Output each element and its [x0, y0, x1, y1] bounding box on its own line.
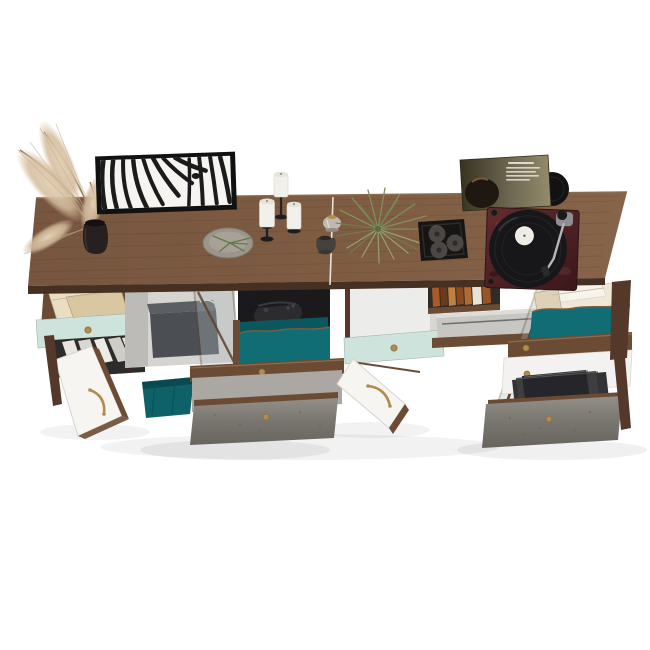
concrete-front	[482, 396, 622, 448]
brass-knob	[391, 345, 397, 351]
brass-knob	[263, 414, 269, 420]
candle-3	[287, 202, 301, 234]
concrete-drawer-right	[482, 392, 624, 448]
zebra-art-frame	[95, 152, 237, 215]
concrete-front	[190, 398, 338, 445]
teal-basket	[142, 377, 194, 418]
brass-knob	[523, 345, 529, 351]
sideboard-scene	[0, 0, 650, 650]
media-compartment	[125, 280, 240, 372]
turntable	[485, 207, 580, 290]
pampas-grass	[7, 116, 111, 262]
concrete-drawer-left	[190, 358, 344, 445]
black-vase	[83, 219, 108, 254]
candle-tray	[418, 219, 468, 261]
brass-knob	[259, 369, 265, 375]
brass-knob	[546, 416, 552, 422]
vinyl-album	[460, 155, 569, 211]
album-face-art	[465, 178, 499, 208]
left-unit	[36, 278, 344, 445]
ceramic-plate	[203, 228, 253, 258]
door-panel	[337, 359, 405, 428]
product-photo-canvas	[0, 0, 650, 650]
brass-knob	[85, 327, 91, 333]
